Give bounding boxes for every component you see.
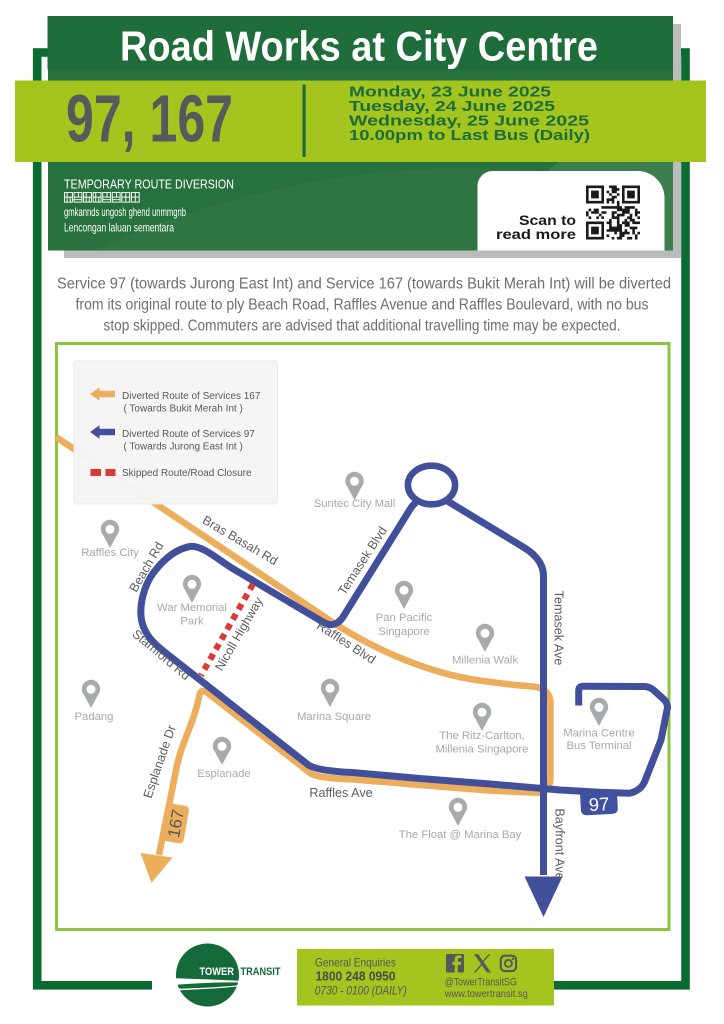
- svg-text:Marina Centre: Marina Centre: [563, 728, 635, 740]
- svg-text:( Towards Bukit Merah Int ): ( Towards Bukit Merah Int ): [124, 404, 243, 415]
- svg-text:War Memorial: War Memorial: [157, 602, 227, 614]
- svg-text:www.towertransit.sg: www.towertransit.sg: [444, 989, 528, 1000]
- svg-text:Service 97 (towards Jurong Eas: Service 97 (towards Jurong East Int) and…: [57, 276, 671, 293]
- svg-text:Esplanade: Esplanade: [197, 768, 250, 780]
- svg-text:TOWER: TOWER: [200, 966, 235, 978]
- svg-text:from its original route to ply: from its original route to ply Beach Roa…: [76, 297, 649, 314]
- svg-text:Diverted Route of Services 97: Diverted Route of Services 97: [122, 429, 255, 440]
- svg-text:97, 167: 97, 167: [66, 82, 233, 157]
- svg-text:@TowerTransitSG: @TowerTransitSG: [445, 977, 517, 989]
- svg-text:Lencongan laluan sementara: Lencongan laluan sementara: [64, 221, 174, 235]
- svg-text:Temasek Ave: Temasek Ave: [552, 591, 566, 666]
- svg-text:The Float @ Marina Bay: The Float @ Marina Bay: [399, 829, 522, 841]
- svg-text:gmkannds ungosh ghend unmmgnb: gmkannds ungosh ghend unmmgnb: [64, 206, 186, 219]
- svg-text:General Enquiries: General Enquiries: [315, 956, 396, 970]
- svg-text:Singapore: Singapore: [378, 626, 430, 638]
- svg-text:0730 - 0100 (DAILY): 0730 - 0100 (DAILY): [315, 984, 407, 998]
- svg-text:The Ritz-Carlton,: The Ritz-Carlton,: [439, 730, 524, 742]
- svg-text:Padang: Padang: [75, 711, 114, 723]
- svg-text:Skipped Route/Road Closure: Skipped Route/Road Closure: [122, 468, 252, 479]
- svg-text:Diverted Route of Services 167: Diverted Route of Services 167: [122, 391, 261, 402]
- svg-text:Raffles Ave: Raffles Ave: [309, 786, 372, 800]
- svg-text:TEMPORARY ROUTE DIVERSION: TEMPORARY ROUTE DIVERSION: [64, 178, 234, 192]
- svg-text:10.00pm to Last Bus (Daily): 10.00pm to Last Bus (Daily): [349, 128, 590, 144]
- svg-text:97: 97: [588, 793, 610, 815]
- svg-text:Pan Pacific: Pan Pacific: [376, 612, 433, 624]
- svg-text:Road Works at City Centre: Road Works at City Centre: [120, 23, 598, 70]
- svg-text:read more: read more: [496, 226, 576, 242]
- svg-text:Marina Square: Marina Square: [297, 711, 371, 723]
- svg-text:Bus Terminal: Bus Terminal: [566, 740, 631, 752]
- svg-text:TRANSIT: TRANSIT: [241, 966, 281, 978]
- svg-text:( Towards Jurong East Int ): ( Towards Jurong East Int ): [124, 442, 243, 453]
- svg-text:Bayfront Ave: Bayfront Ave: [553, 808, 567, 879]
- svg-text:Raffles City: Raffles City: [81, 547, 139, 559]
- svg-text:stop skipped. Commuters are ad: stop skipped. Commuters are advised that…: [104, 318, 621, 335]
- svg-text:Park: Park: [180, 616, 204, 628]
- svg-text:Millenia Walk: Millenia Walk: [452, 655, 518, 667]
- svg-text:Suntec City Mall: Suntec City Mall: [314, 498, 396, 510]
- svg-text:Millenia Singapore: Millenia Singapore: [436, 744, 529, 756]
- svg-text:1800 248 0950: 1800 248 0950: [316, 969, 396, 984]
